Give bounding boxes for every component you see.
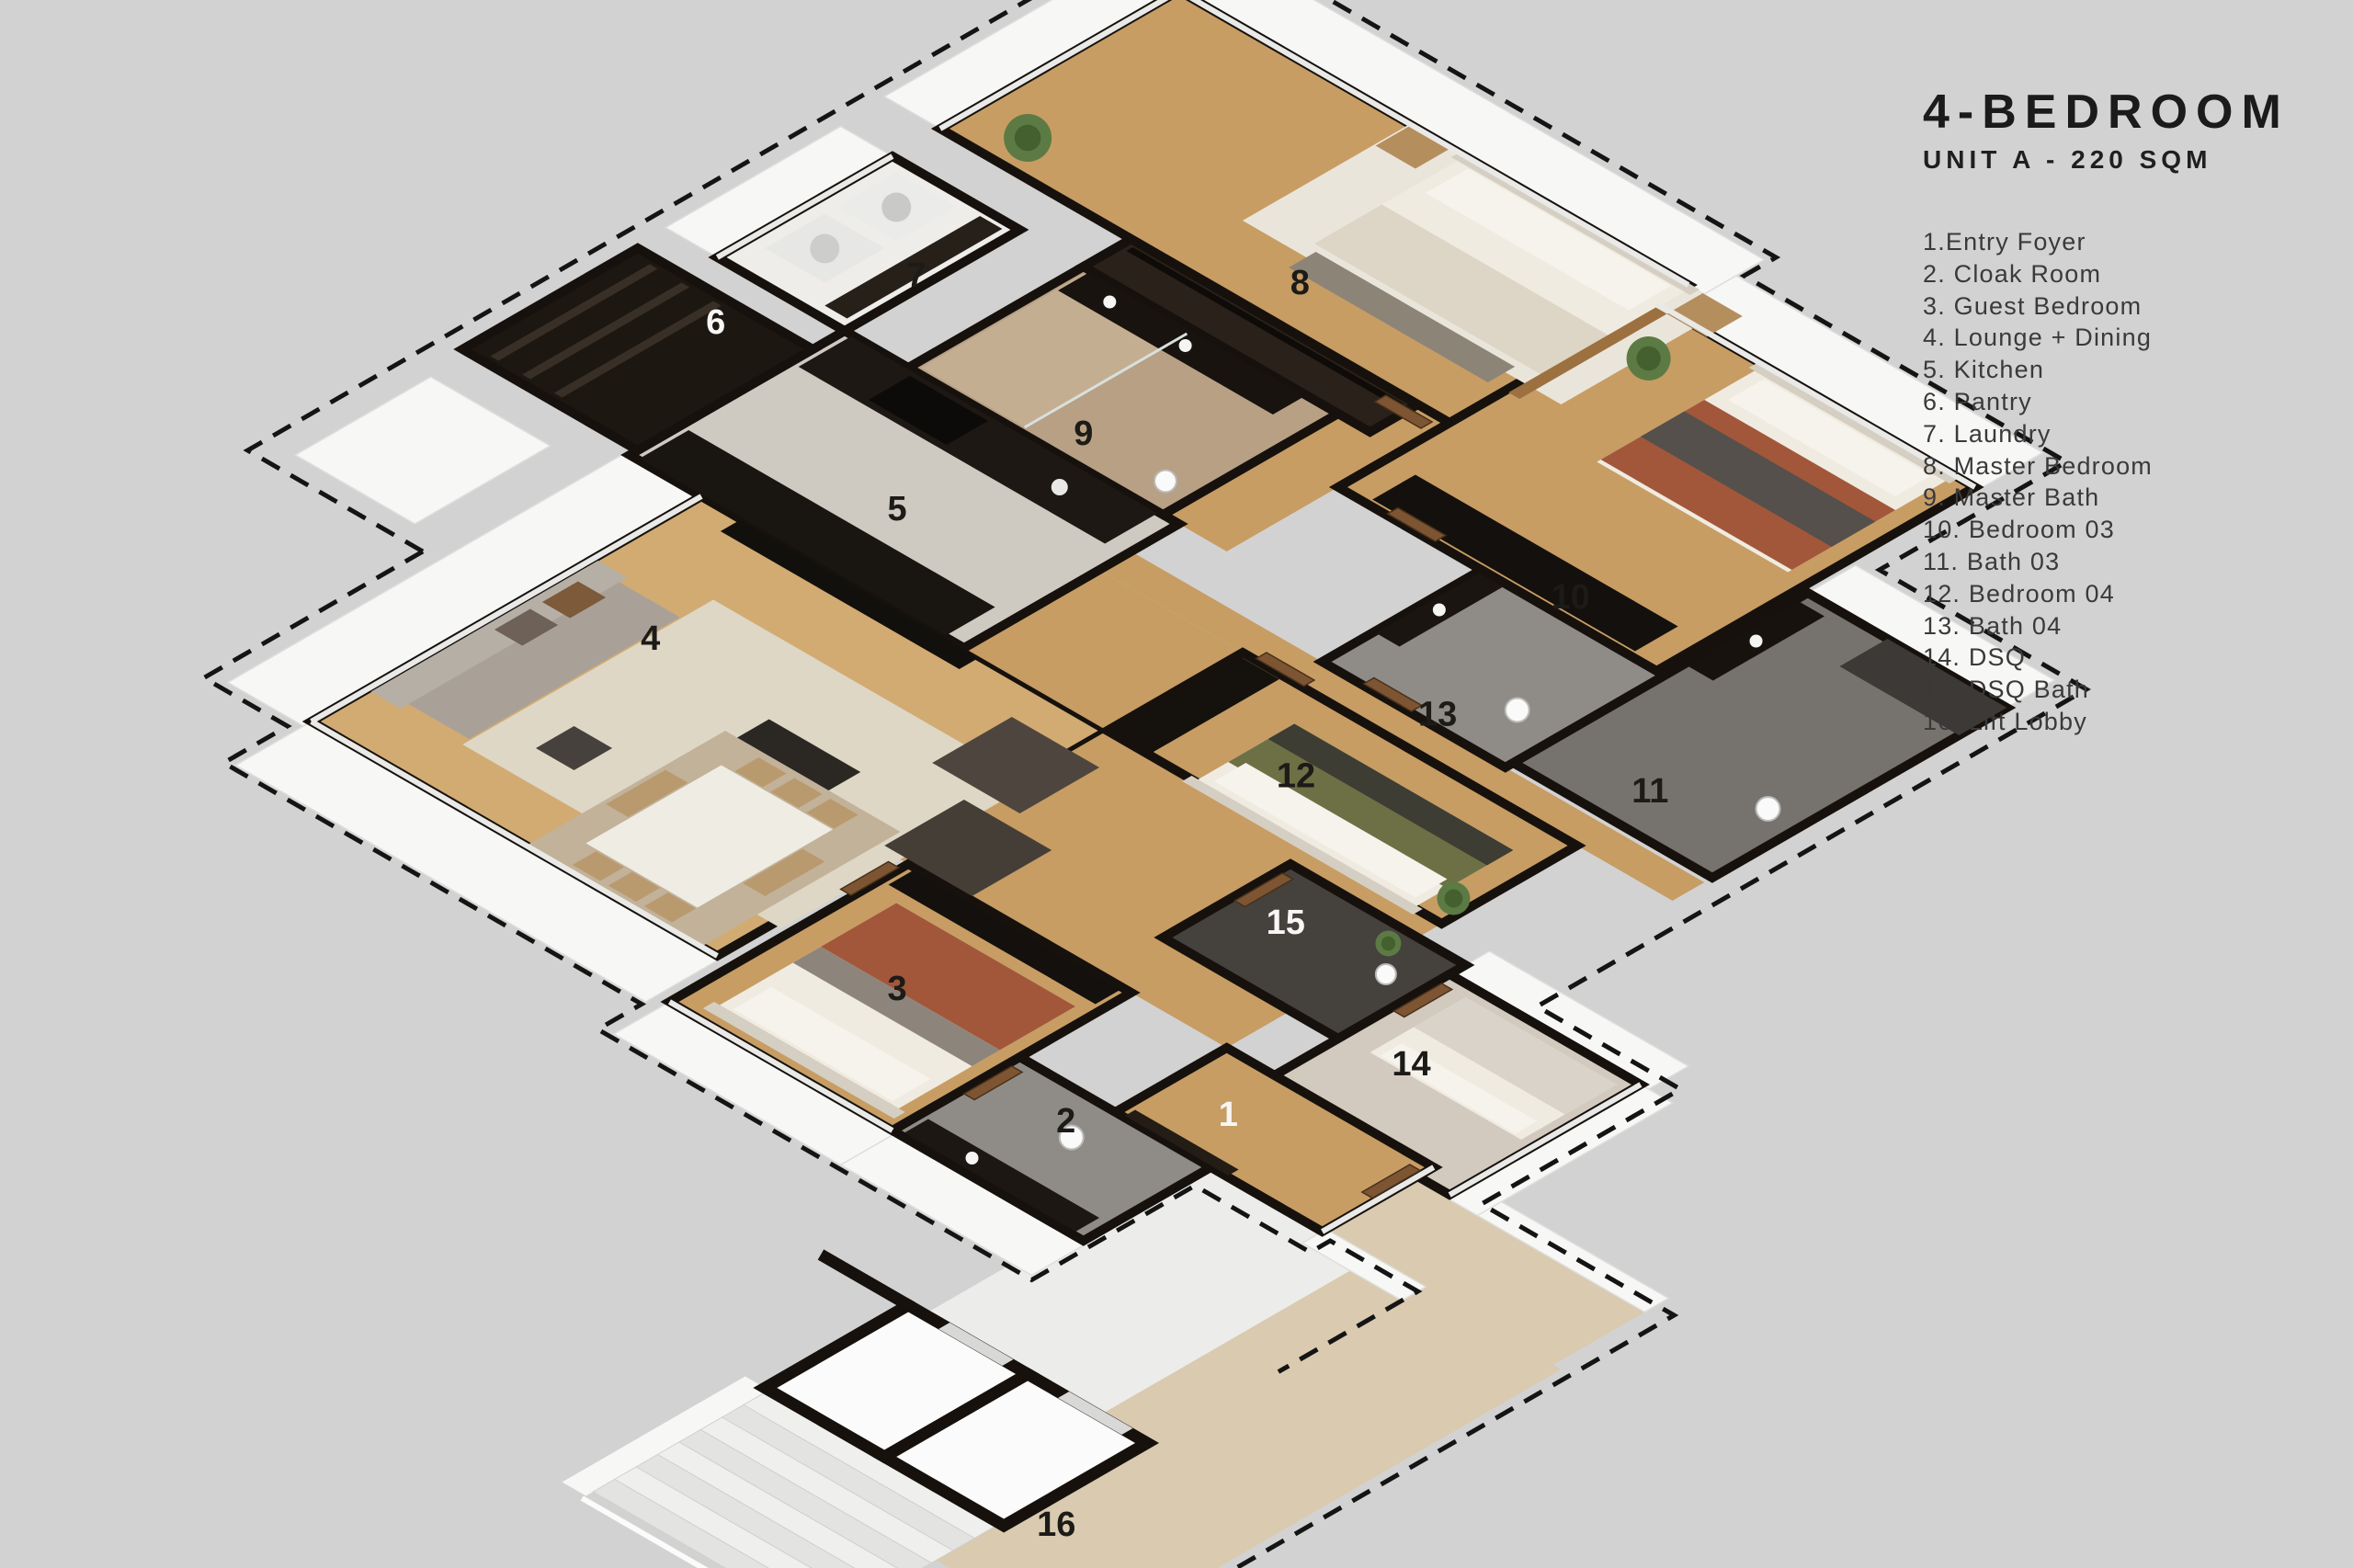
page-title: 4-BEDROOM [1923,88,2327,136]
room-number-bath-03: 11 [1631,772,1668,811]
room-number-entry-foyer: 1 [1219,1096,1238,1134]
room-number-master-bath: 9 [1074,415,1093,453]
room-legend: 1.Entry Foyer2. Cloak Room3. Guest Bedro… [1923,226,2327,738]
legend-item: 6. Pantry [1923,386,2327,418]
room-number-guest-bedroom: 3 [888,970,907,1008]
basin [1179,339,1192,352]
legend-item: 13. Bath 04 [1923,610,2327,642]
page: { "title": { "heading": "4-BEDROOM", "su… [0,0,2353,1568]
room-number-lift-lobby: 16 [1037,1506,1075,1544]
legend-item: 8. Master Bedroom [1923,450,2327,483]
basin [966,1152,979,1165]
room-number-kitchen: 5 [888,490,907,528]
legend-item: 11. Bath 03 [1923,546,2327,578]
kitchen-sink [1051,479,1068,495]
room-number-dsq: 14 [1392,1045,1430,1084]
page-subtitle: UNIT A - 220 SQM [1923,145,2327,175]
basin [1750,635,1763,648]
info-panel: 4-BEDROOM UNIT A - 220 SQM 1.Entry Foyer… [1923,88,2327,738]
plant-inner [1015,125,1041,152]
room-number-bedroom-03: 10 [1552,578,1590,617]
room-number-bath-04: 13 [1418,696,1457,734]
room-number-laundry: 7 [906,256,926,295]
wc [1154,471,1176,493]
lobby-wall-spur [821,1255,913,1308]
legend-item: 16. Lift Lobby [1923,706,2327,738]
plant-inner [1381,937,1395,950]
legend-item: 3. Guest Bedroom [1923,290,2327,323]
legend-item: 14. DSQ [1923,642,2327,674]
room-number-cloak-room: 2 [1056,1102,1075,1141]
room-number-bedroom-04: 12 [1277,757,1315,796]
wc [1376,964,1396,984]
legend-item: 2. Cloak Room [1923,258,2327,290]
legend-item: 15. DSQ Bath [1923,674,2327,706]
legend-item: 9. Master Bath [1923,482,2327,514]
basin [1103,296,1116,309]
room-number-master-bedroom: 8 [1290,264,1310,302]
room-number-dsq-bath: 15 [1267,903,1305,942]
plant-inner [1636,347,1660,370]
wc [1506,699,1529,722]
legend-item: 4. Lounge + Dining [1923,322,2327,354]
wc [1756,797,1780,821]
legend-item: 1.Entry Foyer [1923,226,2327,258]
legend-item: 10. Bedroom 03 [1923,514,2327,546]
dryer-door [810,234,839,264]
legend-item: 7. Laundry [1923,418,2327,450]
washer-door [881,193,911,222]
room-number-lounge-dining: 4 [641,619,660,658]
plant-inner [1445,890,1463,908]
room-number-pantry: 6 [706,303,725,342]
legend-item: 5. Kitchen [1923,354,2327,386]
legend-item: 12. Bedroom 04 [1923,578,2327,610]
basin [1433,604,1446,617]
